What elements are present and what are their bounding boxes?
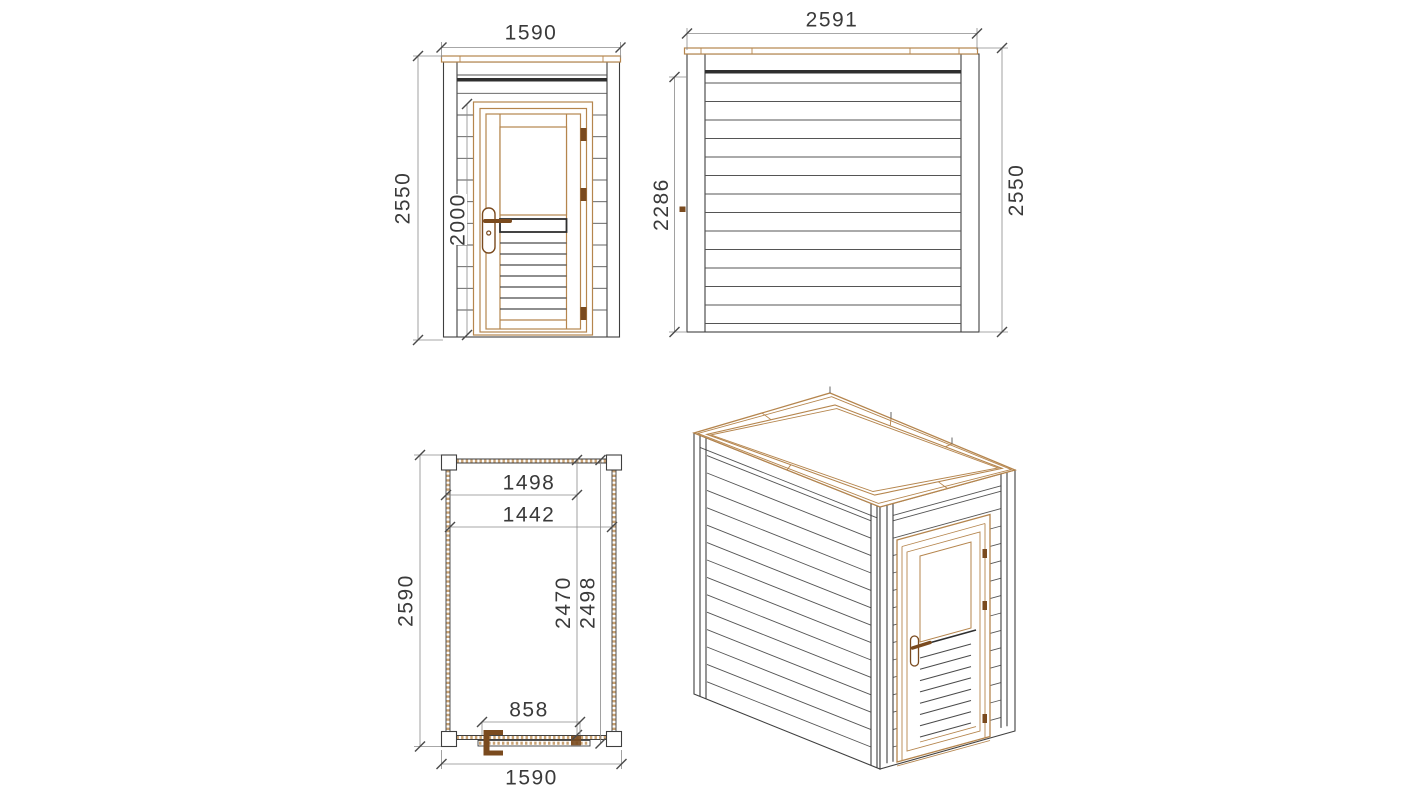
iso-front-wall (880, 470, 1015, 769)
door-window (500, 127, 567, 215)
side-dim-wall-height: 2286 (650, 72, 687, 337)
plan-door (478, 730, 590, 756)
front-dim-width: 1590 (437, 22, 626, 59)
technical-drawing-canvas: 1590 2550 2000 (0, 0, 1422, 800)
dim-plan-inner-depth-label: 2470 (552, 576, 575, 629)
side-dim-height: 2550 (978, 43, 1029, 337)
plan-dim-top-inner-width: 1498 (441, 472, 582, 501)
plan-dim-width: 1590 (437, 750, 627, 790)
dim-plan-top-inner-width-label: 1498 (503, 472, 556, 495)
dim-plan-inner-width-label: 1442 (503, 504, 556, 527)
front-fascia (442, 56, 621, 62)
dim-plan-width-label: 1590 (505, 767, 558, 790)
plan-dim-depth: 2590 (395, 450, 442, 752)
drawing-sheet: 1590 2550 2000 (0, 0, 1422, 800)
dim-plan-door-width-label: 858 (509, 699, 549, 722)
plan-door-hinge-fitting (571, 736, 581, 746)
side-elevation-view: 2591 2286 2550 (650, 9, 1028, 338)
iso-door-window (920, 542, 971, 642)
iso-door (897, 515, 990, 767)
dim-side-width-label: 2591 (806, 9, 859, 32)
side-fascia (685, 48, 978, 54)
dim-plan-outer-depth-label: 2498 (577, 576, 600, 629)
plan-dim-door-width: 858 (477, 699, 585, 736)
dim-front-door-height-label: 2000 (447, 193, 470, 246)
plan-dim-outer-depth: 2498 (577, 455, 606, 749)
isometric-view (694, 387, 1015, 770)
plan-dim-inner-width: 1442 (445, 504, 617, 533)
side-door-handle-mark (680, 207, 686, 213)
dim-plan-depth-label: 2590 (395, 574, 418, 627)
front-door (474, 102, 593, 335)
side-dim-width: 2591 (682, 9, 982, 51)
dim-front-width-label: 1590 (505, 22, 558, 45)
front-elevation-view: 1590 2550 2000 (392, 22, 626, 346)
front-dim-height: 2550 (392, 51, 444, 345)
floor-plan-view: 2470 2498 1498 1442 858 (395, 450, 627, 790)
dim-side-height-label: 2550 (1005, 164, 1028, 217)
dim-side-wall-height-label: 2286 (650, 178, 673, 231)
side-wall (680, 54, 980, 332)
dim-front-height-label: 2550 (392, 172, 415, 225)
